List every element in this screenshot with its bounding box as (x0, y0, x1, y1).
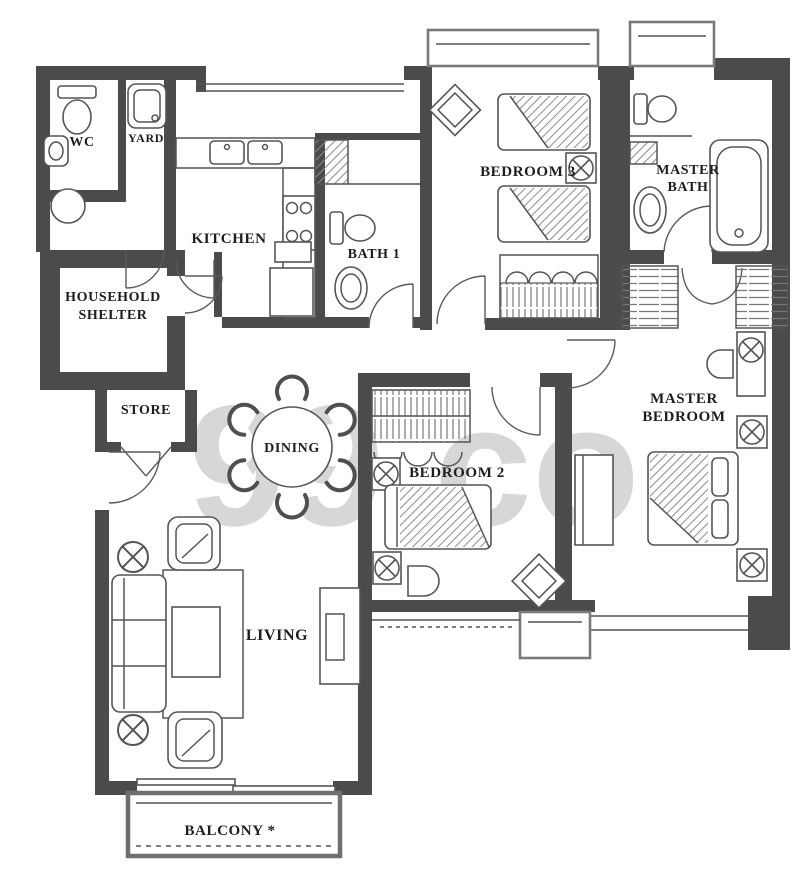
sink (44, 136, 68, 166)
service-shaft (630, 142, 657, 164)
toilet-bowl (63, 100, 91, 134)
dining-chair (277, 495, 307, 517)
wardrobe (622, 266, 678, 328)
label-kitchen: KITCHEN (191, 231, 266, 247)
lamp-symbol (118, 715, 148, 745)
toilet-tank (330, 212, 343, 244)
label-balcony: BALCONY * (184, 823, 275, 839)
label-master-bedroom-2: BEDROOM (642, 409, 725, 425)
cabinet (275, 242, 311, 262)
stool (408, 566, 439, 596)
label-household-2: SHELTER (78, 308, 147, 323)
label-wc: WC (69, 135, 94, 150)
label-bath1: BATH 1 (348, 247, 401, 262)
lamp-symbol (739, 338, 763, 362)
label-master-bedroom-1: MASTER (650, 391, 718, 407)
coffee-table (172, 607, 220, 677)
lamp-symbol (118, 542, 148, 572)
label-household-1: HOUSEHOLD (65, 290, 161, 305)
label-store: STORE (121, 403, 171, 418)
sofa (112, 575, 166, 712)
pillow (712, 458, 728, 496)
yard-fixtures (128, 84, 166, 128)
dresser (575, 455, 613, 545)
label-bedroom2: BEDROOM 2 (409, 465, 505, 481)
floor-plan-page: 99.co (0, 0, 800, 889)
label-living: LIVING (246, 627, 308, 644)
lamp-symbol (740, 420, 764, 444)
stool (707, 350, 733, 378)
toilet-tank (634, 94, 647, 124)
lamp-symbol (375, 556, 399, 580)
toilet-bowl (345, 215, 375, 241)
lamp-symbol (374, 462, 398, 486)
lamp-symbol (740, 553, 764, 577)
floor-plan: 99.co (0, 0, 800, 889)
fridge (270, 268, 313, 316)
sliding-door-panel (137, 779, 235, 785)
service-shaft (315, 140, 348, 184)
dining-chair (277, 377, 307, 399)
label-master-bath-2: BATH (667, 180, 708, 195)
toilet-tank (58, 86, 96, 98)
toilet-bowl (648, 96, 676, 122)
water-heater (51, 189, 85, 223)
label-master-bath-1: MASTER (656, 163, 720, 178)
wardrobe (736, 266, 788, 328)
label-bedroom3: BEDROOM 3 (480, 164, 576, 180)
label-yard: YARD (128, 131, 164, 145)
label-dining: DINING (264, 441, 320, 456)
pillow (712, 500, 728, 538)
